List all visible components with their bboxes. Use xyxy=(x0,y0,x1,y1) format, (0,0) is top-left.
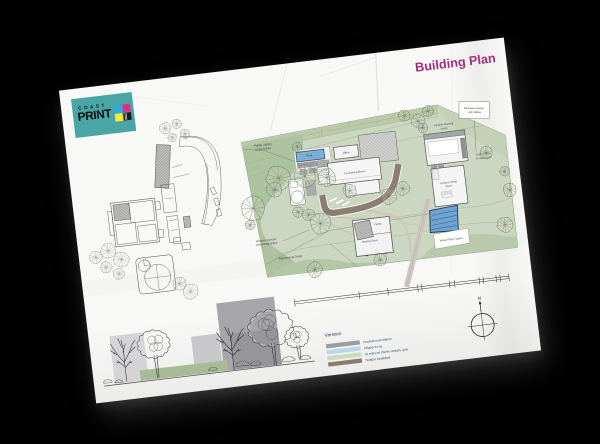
svg-text:with Sitting: with Sitting xyxy=(468,110,481,114)
svg-text:Backyard Garden: Backyard Garden xyxy=(464,106,485,110)
svg-text:N: N xyxy=(478,296,482,301)
